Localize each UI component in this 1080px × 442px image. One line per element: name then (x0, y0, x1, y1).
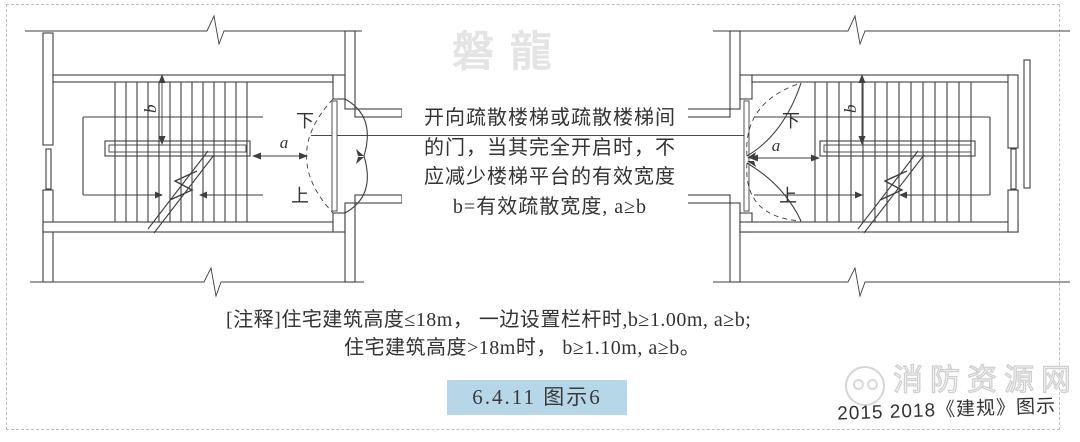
bottom-wall-break-line (713, 268, 1070, 296)
annotation-line-2: 的门，当其完全开启时，不 (399, 134, 701, 164)
stair-break-line (858, 151, 924, 233)
brand-watermark: 磐龍 (452, 18, 568, 79)
note-line-1: [注释]住宅建筑高度≤18m， 一边设置栏杆时,b≥1.00m, a≥b; (226, 306, 946, 334)
top-wall-break-line (25, 16, 362, 44)
code-illustration-page: { "watermarks": { "brand": "磐龍", "site":… (0, 0, 1080, 442)
annotation-text: 开向疏散楼梯或疏散楼梯间 的门，当其完全开启时，不 应减少楼梯平台的有效宽度 b… (399, 104, 701, 222)
annotation-line-1: 开向疏散楼梯或疏散楼梯间 (399, 104, 701, 134)
annotation-line-3: 应减少楼梯平台的有效宽度 (399, 163, 701, 193)
bottom-wall-break-line (30, 268, 364, 296)
top-wall-break-line (713, 16, 1070, 44)
right-stair-plan-diagram: b a 下 上 (688, 10, 1080, 300)
left-stair-plan-diagram: b a 下 上 (12, 10, 402, 300)
label-up: 上 (291, 186, 309, 206)
note-text: [注释]住宅建筑高度≤18m， 一边设置栏杆时,b≥1.00m, a≥b; 住宅… (226, 306, 946, 362)
window (46, 149, 51, 189)
dimension-a (252, 153, 308, 160)
label-down: 下 (296, 111, 314, 131)
annotation-line-4: b=有效疏散宽度, a≥b (399, 193, 701, 223)
window (1011, 149, 1016, 189)
direction-arrow (855, 192, 863, 199)
direction-arrow (899, 192, 907, 199)
note-line-2: 住宅建筑高度>18m时， b≥1.10m, a≥b。 (226, 334, 946, 362)
handrail (105, 141, 250, 156)
door-frame (744, 101, 749, 211)
dimension-a (749, 155, 820, 162)
label-a: a (280, 133, 289, 152)
label-a: a (772, 136, 781, 155)
door-frame (332, 101, 337, 211)
label-down: 下 (782, 111, 800, 131)
figure-number-badge: 6.4.11 图示6 (447, 380, 627, 415)
label-b: b (141, 105, 160, 114)
label-b: b (841, 105, 860, 114)
handrail (820, 141, 975, 156)
label-up: 上 (779, 186, 797, 206)
